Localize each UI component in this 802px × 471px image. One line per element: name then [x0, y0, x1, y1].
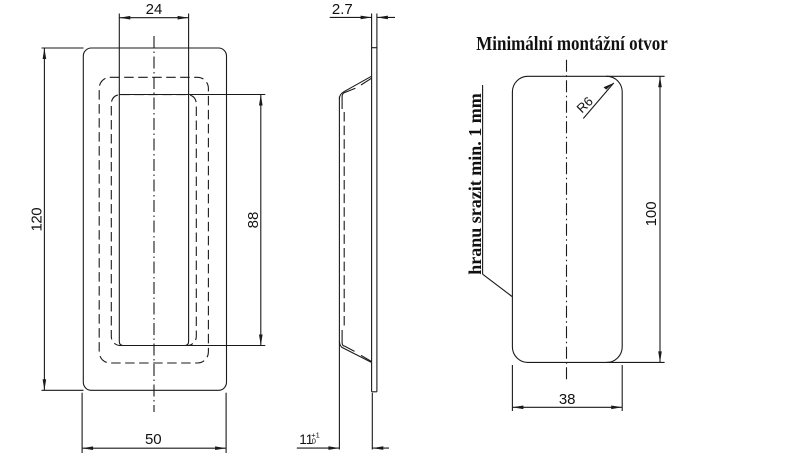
svg-text:100: 100 — [643, 201, 660, 226]
svg-text:24: 24 — [146, 1, 163, 18]
svg-text:88: 88 — [245, 212, 262, 229]
svg-text:Minimální montážní otvor: Minimální montážní otvor — [476, 33, 667, 54]
svg-text:38: 38 — [559, 391, 576, 408]
svg-text:120: 120 — [28, 208, 45, 232]
svg-text:50: 50 — [145, 431, 162, 448]
svg-text:2.7: 2.7 — [332, 1, 353, 18]
svg-text:0: 0 — [312, 436, 316, 445]
svg-text:hranu srazit min. 1 mm: hranu srazit min. 1 mm — [465, 93, 485, 275]
svg-text:R6: R6 — [573, 94, 595, 116]
